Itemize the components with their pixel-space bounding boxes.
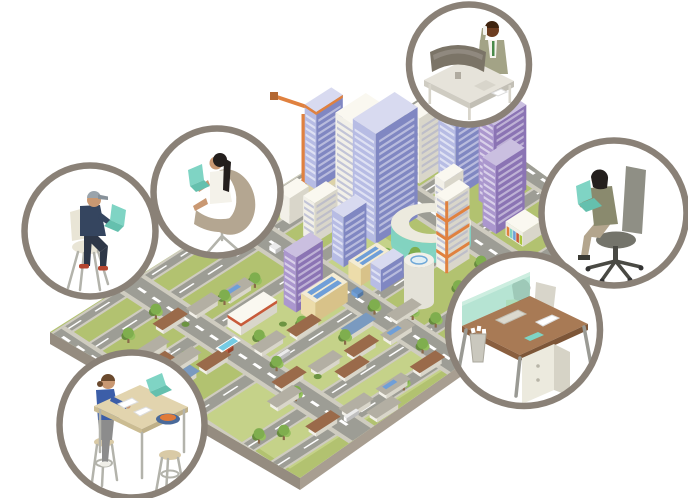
bush bbox=[314, 374, 322, 379]
hair bbox=[591, 169, 608, 189]
phone-icon bbox=[483, 26, 487, 35]
tree-canopy bbox=[430, 312, 441, 323]
corner-stripe bbox=[445, 201, 448, 273]
vignette-cafe-high-table bbox=[60, 353, 205, 498]
vignette-remote-worker-cap bbox=[25, 166, 156, 297]
storefront bbox=[507, 226, 510, 237]
tree-canopy bbox=[417, 338, 428, 349]
tree-canopy bbox=[369, 299, 380, 310]
bush bbox=[182, 322, 190, 327]
bush bbox=[279, 321, 287, 326]
shoe-2 bbox=[79, 264, 89, 269]
helipad bbox=[411, 256, 427, 264]
tree-canopy bbox=[150, 304, 161, 315]
shoe bbox=[98, 266, 108, 271]
tree-canopy bbox=[254, 428, 265, 439]
tree-canopy bbox=[340, 329, 351, 340]
vignette-freelancer-egg-chair bbox=[154, 129, 281, 256]
crane-counterweight bbox=[270, 92, 278, 100]
illustration-canvas bbox=[0, 0, 688, 498]
vignette-executive-phone-desk bbox=[409, 5, 529, 125]
shoe bbox=[578, 255, 590, 260]
shoe bbox=[100, 461, 111, 466]
tree-canopy bbox=[278, 425, 289, 436]
remote-work-city-illustration bbox=[0, 0, 688, 498]
vignette-reception-desk bbox=[448, 254, 600, 406]
tree-canopy bbox=[271, 356, 282, 367]
storefront bbox=[516, 232, 519, 243]
tree-canopy bbox=[123, 328, 134, 339]
building-white bbox=[436, 180, 469, 274]
storefront bbox=[520, 235, 523, 246]
hair-bun bbox=[97, 381, 103, 387]
storefront bbox=[510, 228, 513, 239]
storefront bbox=[513, 230, 516, 241]
chair-back bbox=[622, 166, 646, 234]
fruit-bowl bbox=[156, 414, 180, 425]
